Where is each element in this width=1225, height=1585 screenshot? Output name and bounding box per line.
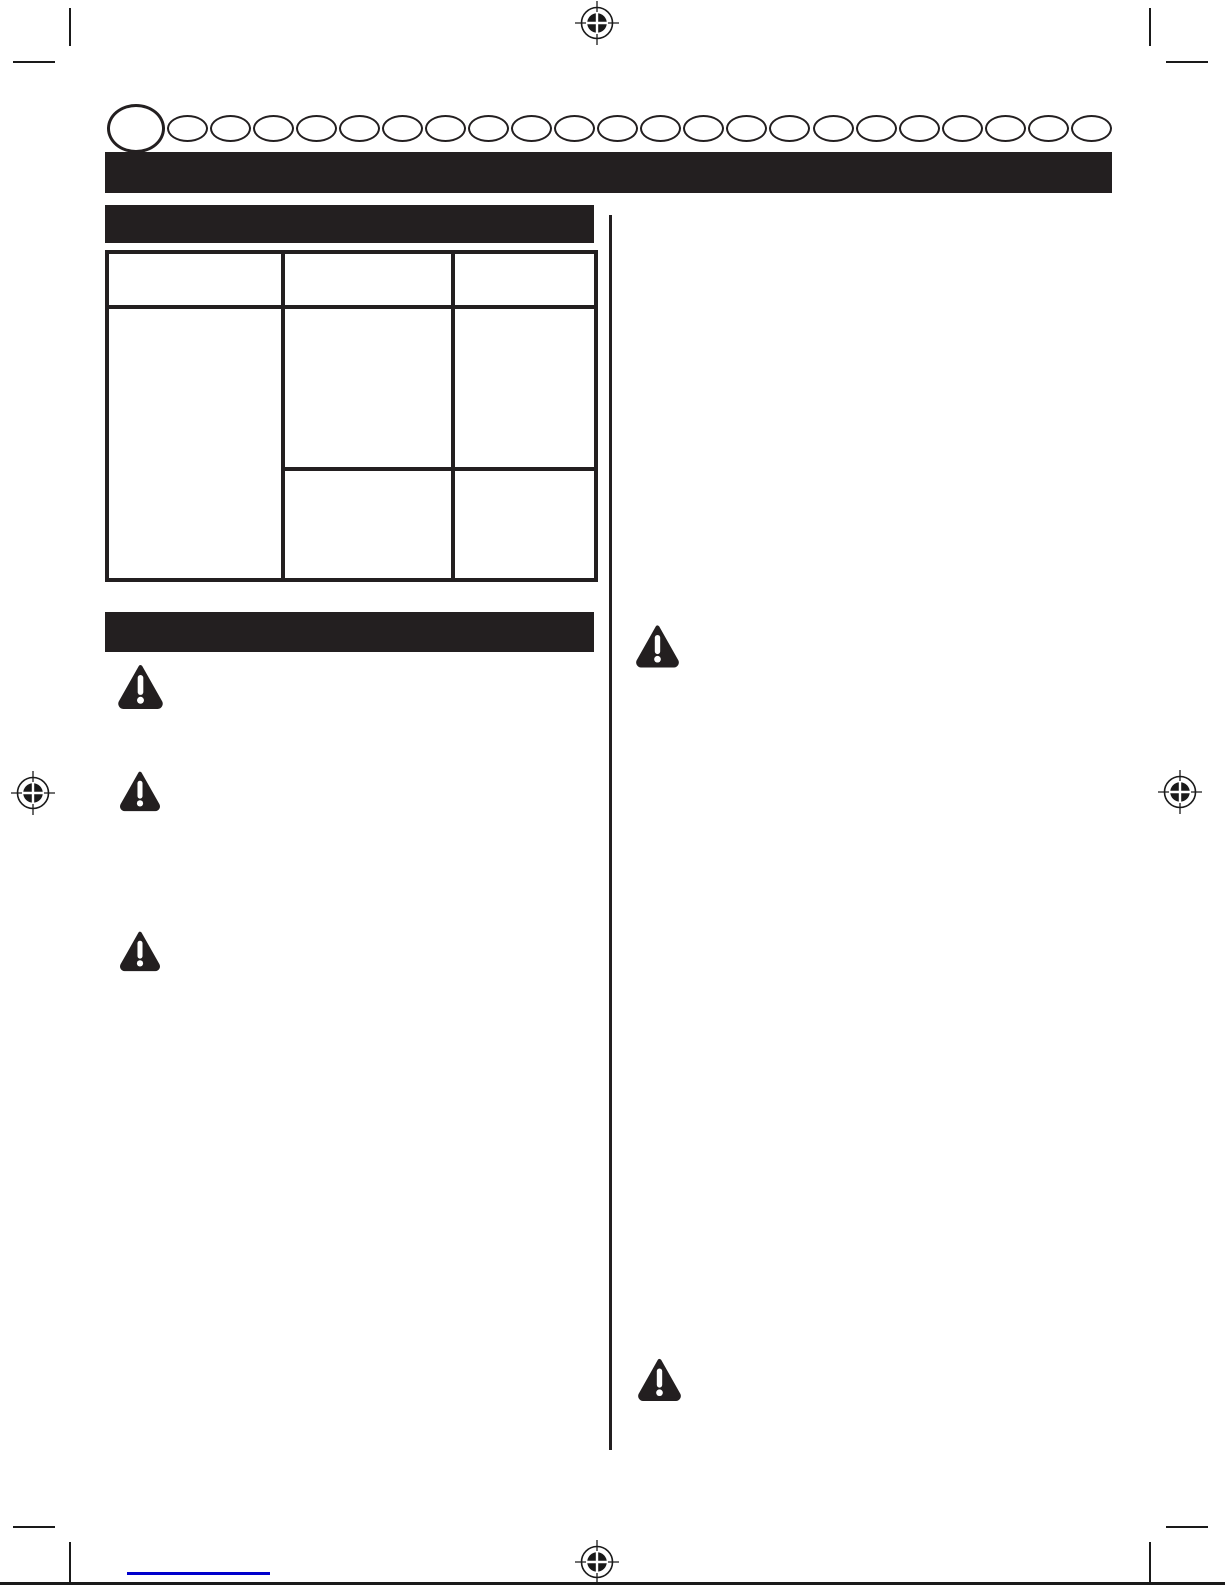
spec-table-cell bbox=[107, 252, 283, 307]
language-tab bbox=[339, 115, 380, 142]
registration-target-icon bbox=[1158, 770, 1202, 814]
crop-mark-top-right-horizontal bbox=[1166, 61, 1208, 63]
crop-mark-bottom-right-vertical bbox=[1149, 1542, 1151, 1583]
spec-table-cell bbox=[283, 252, 453, 307]
language-tab bbox=[1071, 115, 1112, 142]
warning-triangle-icon bbox=[636, 1356, 683, 1403]
language-tab-active bbox=[107, 104, 165, 153]
language-tab bbox=[382, 115, 423, 142]
spec-table-row bbox=[107, 307, 596, 469]
language-tab bbox=[253, 115, 294, 142]
spec-table-cell bbox=[283, 469, 453, 580]
language-tab bbox=[985, 115, 1026, 142]
spec-table-header-row bbox=[107, 252, 596, 307]
crop-mark-top-left-horizontal bbox=[13, 61, 55, 63]
registration-target-icon bbox=[11, 771, 55, 815]
section-bar-2 bbox=[105, 612, 594, 652]
language-tab bbox=[468, 115, 509, 142]
spec-table-cell bbox=[453, 469, 596, 580]
spec-table-cell bbox=[453, 252, 596, 307]
language-tab bbox=[167, 115, 208, 142]
language-tab bbox=[210, 115, 251, 142]
language-tab bbox=[511, 115, 552, 142]
spec-table-cell bbox=[453, 307, 596, 469]
warning-triangle-icon bbox=[116, 662, 165, 711]
crop-mark-top-left-vertical bbox=[69, 8, 71, 46]
warning-triangle-icon bbox=[117, 929, 163, 973]
footer-link-underline[interactable] bbox=[127, 1572, 270, 1575]
registration-target-icon bbox=[575, 1, 619, 45]
language-tab bbox=[899, 115, 940, 142]
language-tab-row bbox=[107, 102, 1112, 154]
crop-mark-bottom-left-vertical bbox=[69, 1542, 71, 1583]
crop-mark-bottom-left-horizontal bbox=[13, 1526, 55, 1528]
registration-target-icon bbox=[575, 1540, 619, 1584]
language-tab bbox=[1028, 115, 1069, 142]
document-page bbox=[0, 0, 1225, 1585]
language-tab bbox=[597, 115, 638, 142]
page-title-bar bbox=[105, 152, 1112, 193]
language-tab bbox=[942, 115, 983, 142]
crop-mark-top-right-vertical bbox=[1149, 8, 1151, 46]
language-tab bbox=[296, 115, 337, 142]
language-tab bbox=[726, 115, 767, 142]
section-bar-1 bbox=[105, 205, 594, 243]
language-tab bbox=[769, 115, 810, 142]
spec-table-cell bbox=[107, 307, 283, 580]
language-tab bbox=[640, 115, 681, 142]
column-divider-rule bbox=[609, 215, 612, 1450]
language-tab bbox=[554, 115, 595, 142]
spec-table bbox=[105, 250, 598, 582]
language-tab bbox=[425, 115, 466, 142]
warning-triangle-icon bbox=[117, 769, 163, 813]
language-tab bbox=[683, 115, 724, 142]
spec-table-cell bbox=[283, 307, 453, 469]
warning-triangle-icon bbox=[634, 622, 681, 670]
crop-mark-bottom-right-horizontal bbox=[1166, 1526, 1208, 1528]
language-tab bbox=[813, 115, 854, 142]
language-tab bbox=[856, 115, 897, 142]
